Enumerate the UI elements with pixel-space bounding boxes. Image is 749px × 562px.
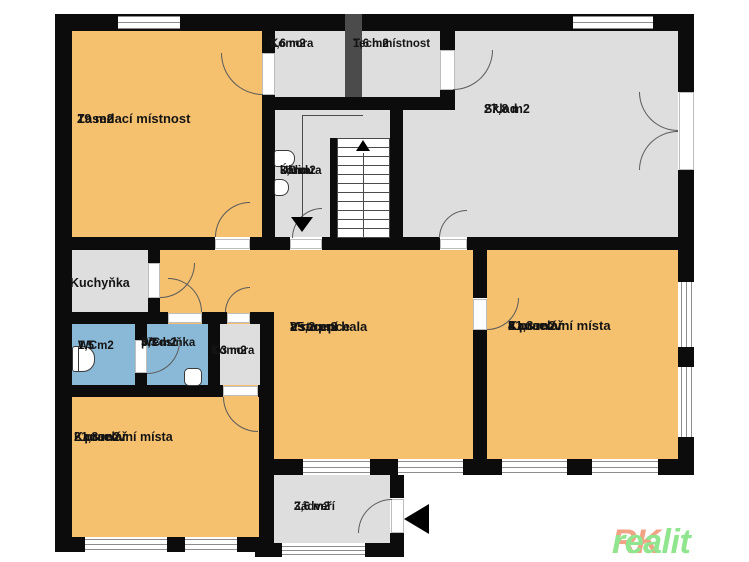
stairs-up-arrow-icon [356,140,370,151]
door-opening [290,239,322,249]
door-opening [440,239,467,249]
window [681,367,692,437]
door-opening [473,299,487,330]
wall-segment [322,237,440,250]
door-opening [679,92,694,170]
wall-segment [473,330,487,459]
wall-segment [678,14,694,92]
wall-segment [390,533,404,557]
wall-segment [390,475,404,498]
wall-segment [258,385,274,397]
door-opening [148,263,160,298]
window [681,282,692,347]
wall-segment [250,237,290,250]
wall-segment [262,95,275,237]
door-opening [262,53,275,95]
wall-segment [390,110,403,250]
floor-plan: Zasedací místnost 19 m2 Komora 1,6 m2 Te… [0,0,749,562]
window [398,461,463,473]
window [573,16,653,29]
door-opening [215,239,250,249]
stairs-side-wall [330,138,337,238]
window [502,461,567,473]
window [592,461,658,473]
sink-icon [274,179,289,196]
wall-segment [262,97,455,110]
wall-segment [440,14,455,50]
wall-segment [678,347,694,367]
door-opening [227,313,250,323]
wall-segment [255,543,282,557]
window [282,546,365,555]
entrance-arrow-icon [404,504,429,534]
wall-segment [55,537,85,552]
wall-segment [567,459,592,475]
wall-segment [658,459,694,475]
window [85,539,167,550]
chimney-column [345,14,362,110]
wall-segment [259,397,274,552]
wall-segment [467,237,678,250]
wall-segment [55,312,168,324]
wall-segment [273,459,303,475]
sink-icon [184,368,202,386]
wall-segment [55,385,223,397]
wall-segment [135,373,147,385]
wall-segment [167,537,185,552]
stairs-down-arrow-icon [291,217,313,232]
wall-segment [678,170,694,282]
stairs-walk-line [363,153,364,238]
door-opening [223,386,258,396]
wall-segment [148,250,160,263]
room-kancelar-4 [487,250,678,459]
wall-segment [202,312,227,324]
stairs-guide-line [302,115,363,116]
wall-segment [370,459,398,475]
door-opening [391,499,404,533]
wall-segment [473,250,487,298]
door-opening [168,313,202,323]
wall-segment [55,237,215,250]
window [185,539,237,550]
wall-segment [148,298,160,312]
window [303,461,370,473]
window [118,16,180,29]
wall-segment [463,459,502,475]
